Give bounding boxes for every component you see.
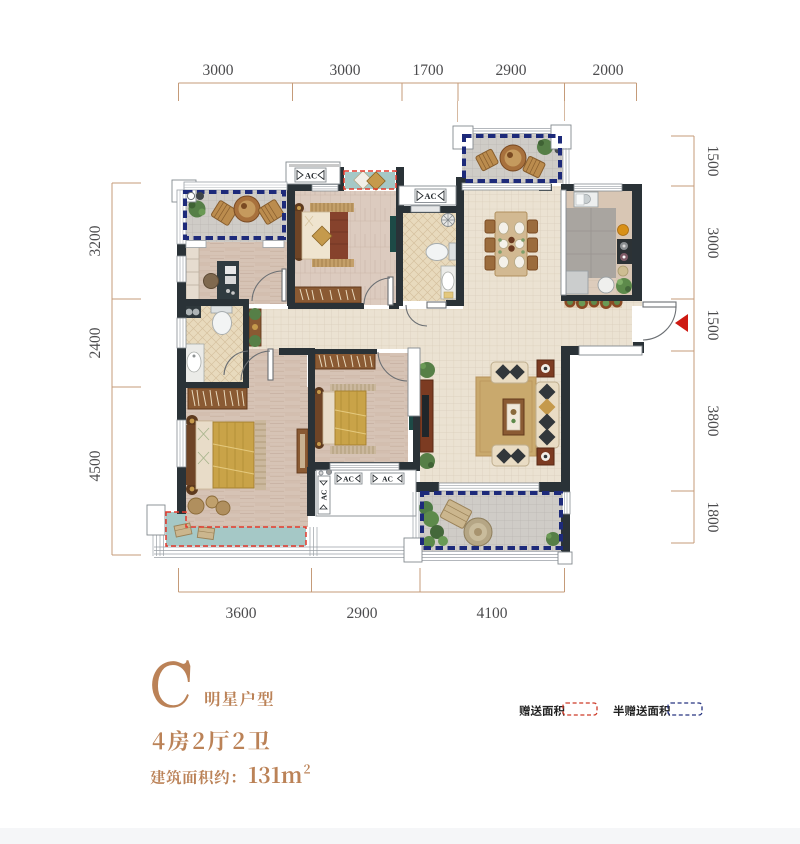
- svg-text:AC: AC: [343, 475, 354, 484]
- svg-text:2900: 2900: [347, 605, 378, 622]
- svg-text:1700: 1700: [413, 62, 444, 79]
- svg-text:3000: 3000: [330, 62, 361, 79]
- svg-text:2900: 2900: [496, 62, 527, 79]
- svg-text:3600: 3600: [226, 605, 257, 622]
- svg-text:3000: 3000: [704, 228, 721, 259]
- svg-text:3000: 3000: [203, 62, 234, 79]
- svg-text:4100: 4100: [477, 605, 508, 622]
- svg-text:2400: 2400: [87, 327, 104, 358]
- svg-text:1500: 1500: [704, 310, 721, 341]
- svg-text:AC: AC: [320, 490, 329, 501]
- svg-text:AC: AC: [305, 171, 317, 181]
- svg-text:AC: AC: [382, 475, 393, 484]
- svg-text:1800: 1800: [704, 502, 721, 533]
- svg-text:3200: 3200: [87, 225, 104, 256]
- svg-text:3800: 3800: [704, 406, 721, 437]
- svg-text:2000: 2000: [593, 62, 624, 79]
- svg-text:AC: AC: [424, 191, 436, 201]
- svg-text:1500: 1500: [704, 146, 721, 177]
- svg-text:4500: 4500: [87, 450, 104, 481]
